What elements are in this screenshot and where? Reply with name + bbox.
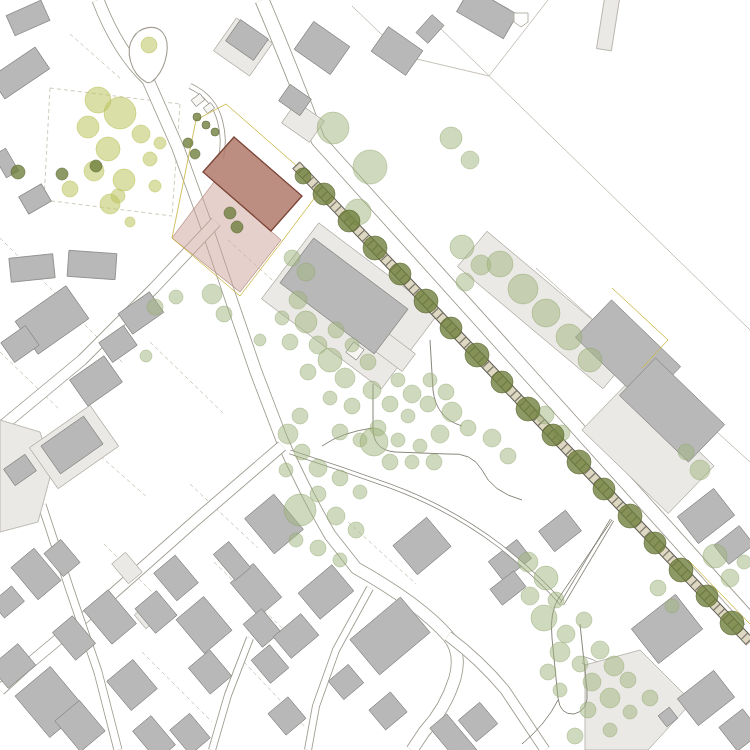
tree-sage	[591, 641, 609, 659]
tree-olive-avenue	[11, 165, 25, 179]
tree-sage	[442, 402, 462, 422]
tree-olive-avenue	[644, 532, 666, 554]
tree-sage	[604, 656, 624, 676]
tree-sage	[254, 334, 266, 346]
tree-yellow-green	[132, 125, 150, 143]
tree-sage	[521, 587, 539, 605]
tree-sage	[328, 322, 344, 338]
tree-sage	[403, 385, 421, 403]
building	[67, 250, 117, 279]
tree-sage	[583, 673, 601, 691]
tree-sage	[345, 338, 359, 352]
tree-sage	[382, 454, 398, 470]
tree-yellow-green	[104, 97, 136, 129]
tree-sage	[353, 150, 387, 184]
tree-sage	[678, 444, 694, 460]
tree-sage	[309, 459, 327, 477]
tree-olive-avenue	[193, 113, 201, 121]
tree-olive-avenue	[567, 450, 591, 474]
tree-olive-avenue	[669, 558, 693, 582]
tree-olive-avenue	[389, 263, 411, 285]
tree-olive-avenue	[720, 611, 744, 635]
tree-olive-avenue	[183, 138, 193, 148]
tree-sage	[295, 311, 317, 333]
tree-sage	[460, 420, 476, 436]
tree-sage	[461, 151, 479, 169]
tree-sage	[440, 127, 462, 149]
tree-sage	[284, 494, 316, 526]
tree-sage	[623, 705, 637, 719]
tree-sage	[567, 728, 583, 744]
tree-olive-avenue	[313, 183, 335, 205]
tree-sage	[426, 454, 442, 470]
tree-sage	[275, 311, 289, 325]
tree-sage	[483, 429, 501, 447]
tree-sage	[327, 507, 345, 525]
tree-sage	[344, 398, 360, 414]
tree-olive-avenue	[516, 397, 540, 421]
tree-sage	[318, 348, 342, 372]
tree-sage	[690, 460, 710, 480]
tree-sage	[310, 540, 326, 556]
tree-sage	[169, 290, 183, 304]
tree-sage	[721, 569, 739, 587]
tree-sage	[556, 324, 582, 350]
tree-sage	[431, 425, 449, 443]
tree-olive-avenue	[56, 168, 68, 180]
tree-sage	[284, 250, 300, 266]
tree-sage	[202, 284, 222, 304]
tree-olive-avenue	[618, 504, 642, 528]
tree-olive-avenue	[295, 168, 311, 184]
tree-yellow-green	[141, 37, 157, 53]
tree-sage	[289, 291, 307, 309]
tree-sage	[317, 112, 349, 144]
tree-sage	[353, 485, 367, 499]
tree-sage	[500, 448, 516, 464]
tree-sage	[147, 299, 163, 315]
tree-sage	[405, 455, 419, 469]
tree-yellow-green	[96, 137, 120, 161]
tree-sage	[333, 553, 347, 567]
tree-sage	[423, 373, 437, 387]
building	[9, 254, 55, 282]
tree-yellow-green	[62, 181, 78, 197]
tree-sage	[557, 625, 575, 643]
tree-sage	[603, 723, 617, 737]
tree-sage	[332, 470, 348, 486]
tree-olive-avenue	[224, 207, 236, 219]
tree-sage	[553, 683, 567, 697]
tree-sage	[140, 350, 152, 362]
tree-sage	[360, 354, 376, 370]
tree-yellow-green	[113, 169, 135, 191]
tree-sage	[508, 274, 538, 304]
tree-olive-avenue	[231, 221, 243, 233]
tree-sage	[413, 439, 427, 453]
tree-yellow-green	[77, 116, 99, 138]
tree-yellow-green	[143, 152, 157, 166]
tree-sage	[548, 592, 564, 608]
site-plan-svg	[0, 0, 750, 750]
tree-sage	[438, 384, 454, 400]
site-plan-map	[0, 0, 750, 750]
tree-yellow-green	[154, 137, 166, 149]
tree-olive-avenue	[211, 128, 219, 136]
tree-olive-avenue	[696, 585, 718, 607]
tree-sage	[216, 306, 232, 322]
tree-sage	[391, 373, 405, 387]
tree-olive-avenue	[202, 121, 210, 129]
tree-sage	[401, 409, 415, 423]
tree-sage	[297, 263, 315, 281]
tree-olive-avenue	[90, 160, 102, 172]
tree-sage	[531, 605, 557, 631]
tree-sage	[278, 424, 298, 444]
tree-sage	[578, 348, 602, 372]
tree-olive-avenue	[414, 289, 438, 313]
tree-olive-avenue	[338, 210, 360, 232]
tree-sage	[348, 522, 364, 538]
tree-sage	[363, 381, 381, 399]
tree-sage	[282, 334, 298, 350]
tree-olive-avenue	[491, 371, 513, 393]
tree-sage	[323, 391, 337, 405]
tree-olive-avenue	[363, 236, 387, 260]
tree-sage	[294, 444, 310, 460]
tree-sage	[279, 463, 293, 477]
tree-sage	[642, 690, 658, 706]
tree-sage	[518, 552, 538, 572]
tree-sage	[487, 251, 513, 277]
tree-sage	[391, 433, 405, 447]
tree-sage	[572, 656, 588, 672]
tree-sage	[550, 642, 570, 662]
tree-yellow-green	[149, 180, 161, 192]
tree-sage	[665, 599, 679, 613]
tree-sage	[576, 612, 592, 628]
tree-sage	[580, 702, 596, 718]
tree-sage	[534, 566, 558, 590]
tree-sage	[456, 273, 474, 291]
tree-sage	[289, 533, 303, 547]
tree-sage	[600, 688, 620, 708]
tree-olive-avenue	[542, 424, 564, 446]
tree-sage	[420, 396, 436, 412]
tree-sage	[737, 555, 750, 569]
tree-sage	[300, 364, 316, 380]
tree-sage	[620, 672, 636, 688]
tree-sage	[292, 408, 308, 424]
tree-yellow-green	[111, 189, 125, 203]
tree-olive-avenue	[593, 478, 615, 500]
tree-sage	[532, 299, 560, 327]
tree-sage	[540, 664, 556, 680]
tree-sage	[335, 368, 355, 388]
tree-olive-avenue	[440, 317, 462, 339]
tree-olive-avenue	[190, 149, 200, 159]
tree-sage	[360, 428, 388, 456]
tree-sage	[450, 235, 474, 259]
tree-sage	[332, 424, 348, 440]
tree-yellow-green	[125, 217, 135, 227]
tree-sage	[650, 580, 666, 596]
tree-olive-avenue	[465, 343, 489, 367]
tree-sage	[703, 544, 727, 568]
tree-sage	[382, 396, 398, 412]
